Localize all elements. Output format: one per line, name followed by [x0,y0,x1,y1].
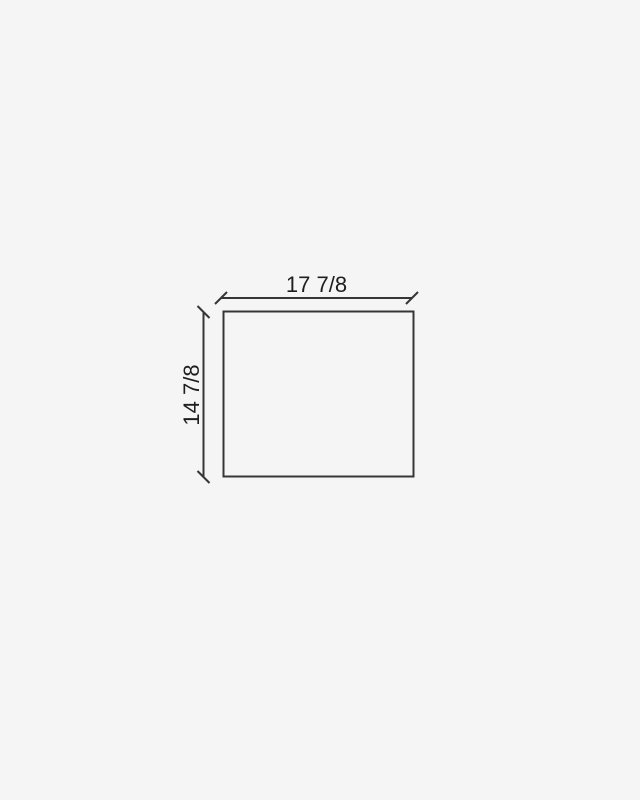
dimension-drawing: 17 7/8 14 7/8 [0,0,640,800]
height-dimension-label: 14 7/8 [179,364,204,425]
panel-outline [224,312,414,477]
width-dimension: 17 7/8 [215,272,418,304]
width-dimension-label: 17 7/8 [286,272,347,297]
height-dimension: 14 7/8 [179,306,210,483]
